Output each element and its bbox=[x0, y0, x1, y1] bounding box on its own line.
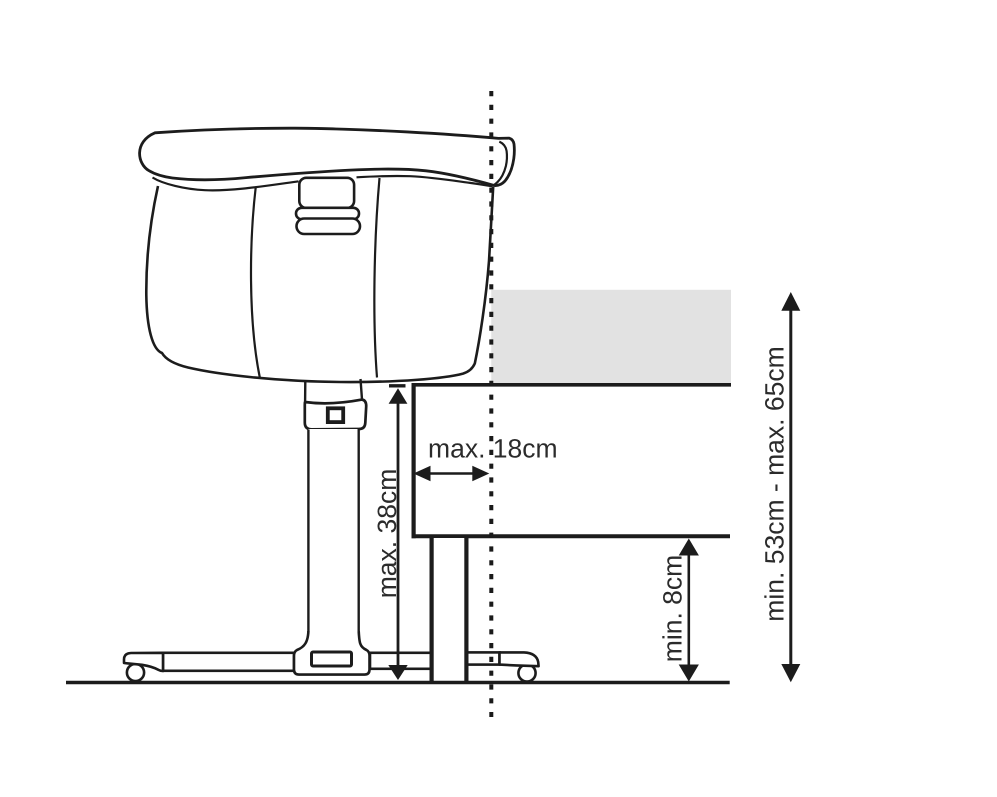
svg-text:min. 8cm: min. 8cm bbox=[658, 555, 688, 663]
svg-text:min. 53cm - max. 65cm: min. 53cm - max. 65cm bbox=[760, 346, 790, 621]
svg-text:max. 38cm: max. 38cm bbox=[372, 469, 402, 599]
